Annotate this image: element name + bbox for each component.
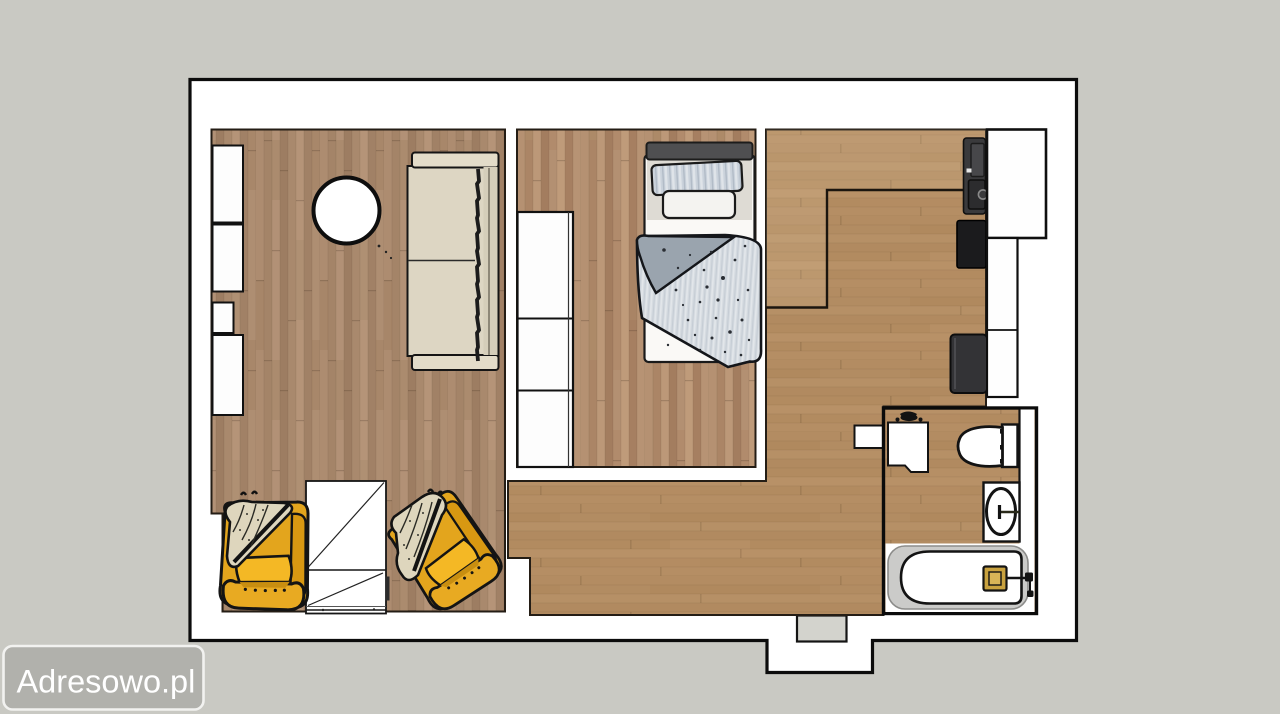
svg-text:Adresowo.pl: Adresowo.pl	[17, 664, 196, 700]
